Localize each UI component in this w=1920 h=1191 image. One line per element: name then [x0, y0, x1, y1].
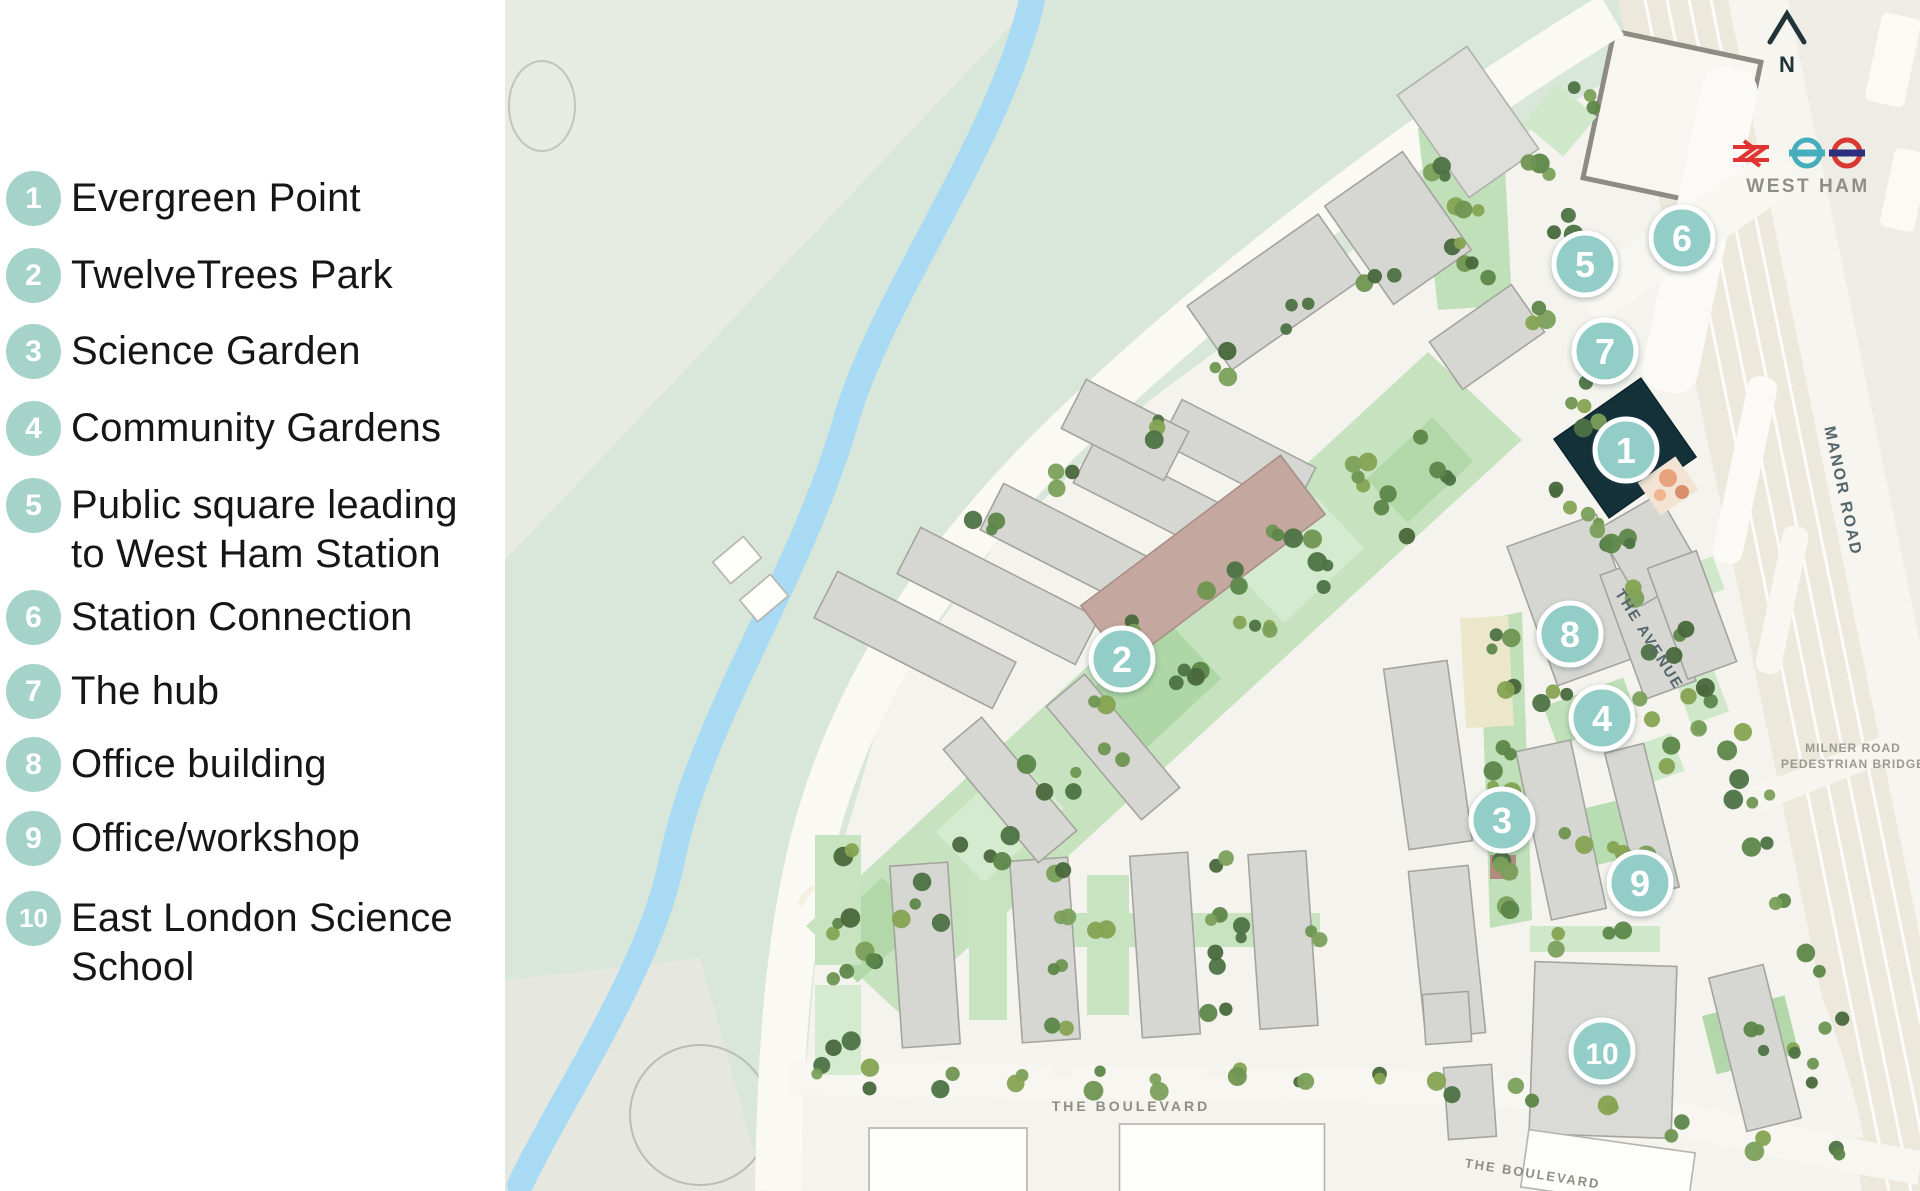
svg-text:6: 6 [1672, 218, 1692, 259]
legend-label: Science Garden [71, 327, 361, 376]
legend-item-3: 3 Science Garden [6, 327, 361, 379]
legend-number-badge: 10 [6, 891, 61, 946]
legend-number-badge: 4 [6, 401, 61, 456]
legend-item-10: 10 East London Science School [6, 894, 496, 992]
map-marker-9: 9 [1609, 852, 1671, 914]
legend-label: The hub [71, 667, 219, 716]
legend-number-badge: 6 [6, 590, 61, 645]
legend-number-badge: 3 [6, 324, 61, 379]
map-marker-8: 8 [1539, 603, 1601, 665]
svg-text:5: 5 [1575, 244, 1595, 285]
legend-label: Public square leading to West Ham Statio… [71, 481, 496, 579]
site-plan-map: WEST HAM MANOR ROAD THE AVENUE MILNER RO… [505, 0, 1920, 1191]
milner-road-label-line1: MILNER ROAD [1805, 741, 1901, 755]
legend-item-5: 5 Public square leading to West Ham Stat… [6, 481, 496, 579]
legend-item-2: 2 TwelveTrees Park [6, 251, 393, 303]
legend-item-1: 1 Evergreen Point [6, 174, 361, 226]
milner-road-label-line2: PEDESTRIAN BRIDGE [1781, 757, 1920, 771]
legend-panel: 1 Evergreen Point 2 TwelveTrees Park 3 S… [0, 0, 505, 1191]
svg-text:1: 1 [1616, 430, 1636, 471]
legend-number-badge: 8 [6, 737, 61, 792]
legend-label: TwelveTrees Park [71, 251, 393, 300]
map-marker-2: 2 [1091, 628, 1153, 690]
the-boulevard-label-west: THE BOULEVARD [1052, 1098, 1211, 1114]
legend-number-badge: 2 [6, 248, 61, 303]
legend-label: East London Science School [71, 894, 496, 992]
legend-item-9: 9 Office/workshop [6, 814, 360, 866]
svg-text:7: 7 [1595, 331, 1615, 372]
legend-number-badge: 9 [6, 811, 61, 866]
svg-text:4: 4 [1592, 698, 1612, 739]
legend-number-badge: 7 [6, 664, 61, 719]
svg-text:9: 9 [1630, 863, 1650, 904]
north-label: N [1779, 52, 1795, 77]
legend-number-badge: 5 [6, 478, 61, 533]
legend-label: Community Gardens [71, 404, 441, 453]
svg-text:3: 3 [1492, 800, 1512, 841]
masterplan-page: 1 Evergreen Point 2 TwelveTrees Park 3 S… [0, 0, 1920, 1191]
legend-item-4: 4 Community Gardens [6, 404, 441, 456]
map-marker-4: 4 [1571, 687, 1633, 749]
svg-text:2: 2 [1112, 639, 1132, 680]
svg-text:8: 8 [1560, 614, 1580, 655]
map-marker-7: 7 [1574, 320, 1636, 382]
west-ham-label: WEST HAM [1746, 176, 1869, 197]
map-marker-5: 5 [1554, 233, 1616, 295]
legend-label: Office building [71, 740, 327, 789]
legend-item-7: 7 The hub [6, 667, 219, 719]
masterplan-svg: WEST HAM MANOR ROAD THE AVENUE MILNER RO… [505, 0, 1920, 1191]
legend-label: Station Connection [71, 593, 413, 642]
legend-label: Evergreen Point [71, 174, 361, 223]
legend-label: Office/workshop [71, 814, 360, 863]
map-marker-1: 1 [1595, 419, 1657, 481]
legend-item-8: 8 Office building [6, 740, 327, 792]
map-marker-3: 3 [1471, 789, 1533, 851]
map-marker-6: 6 [1651, 207, 1713, 269]
svg-text:10: 10 [1585, 1038, 1618, 1071]
legend-number-badge: 1 [6, 171, 61, 226]
legend-item-6: 6 Station Connection [6, 593, 413, 645]
map-marker-10: 10 [1571, 1020, 1633, 1082]
